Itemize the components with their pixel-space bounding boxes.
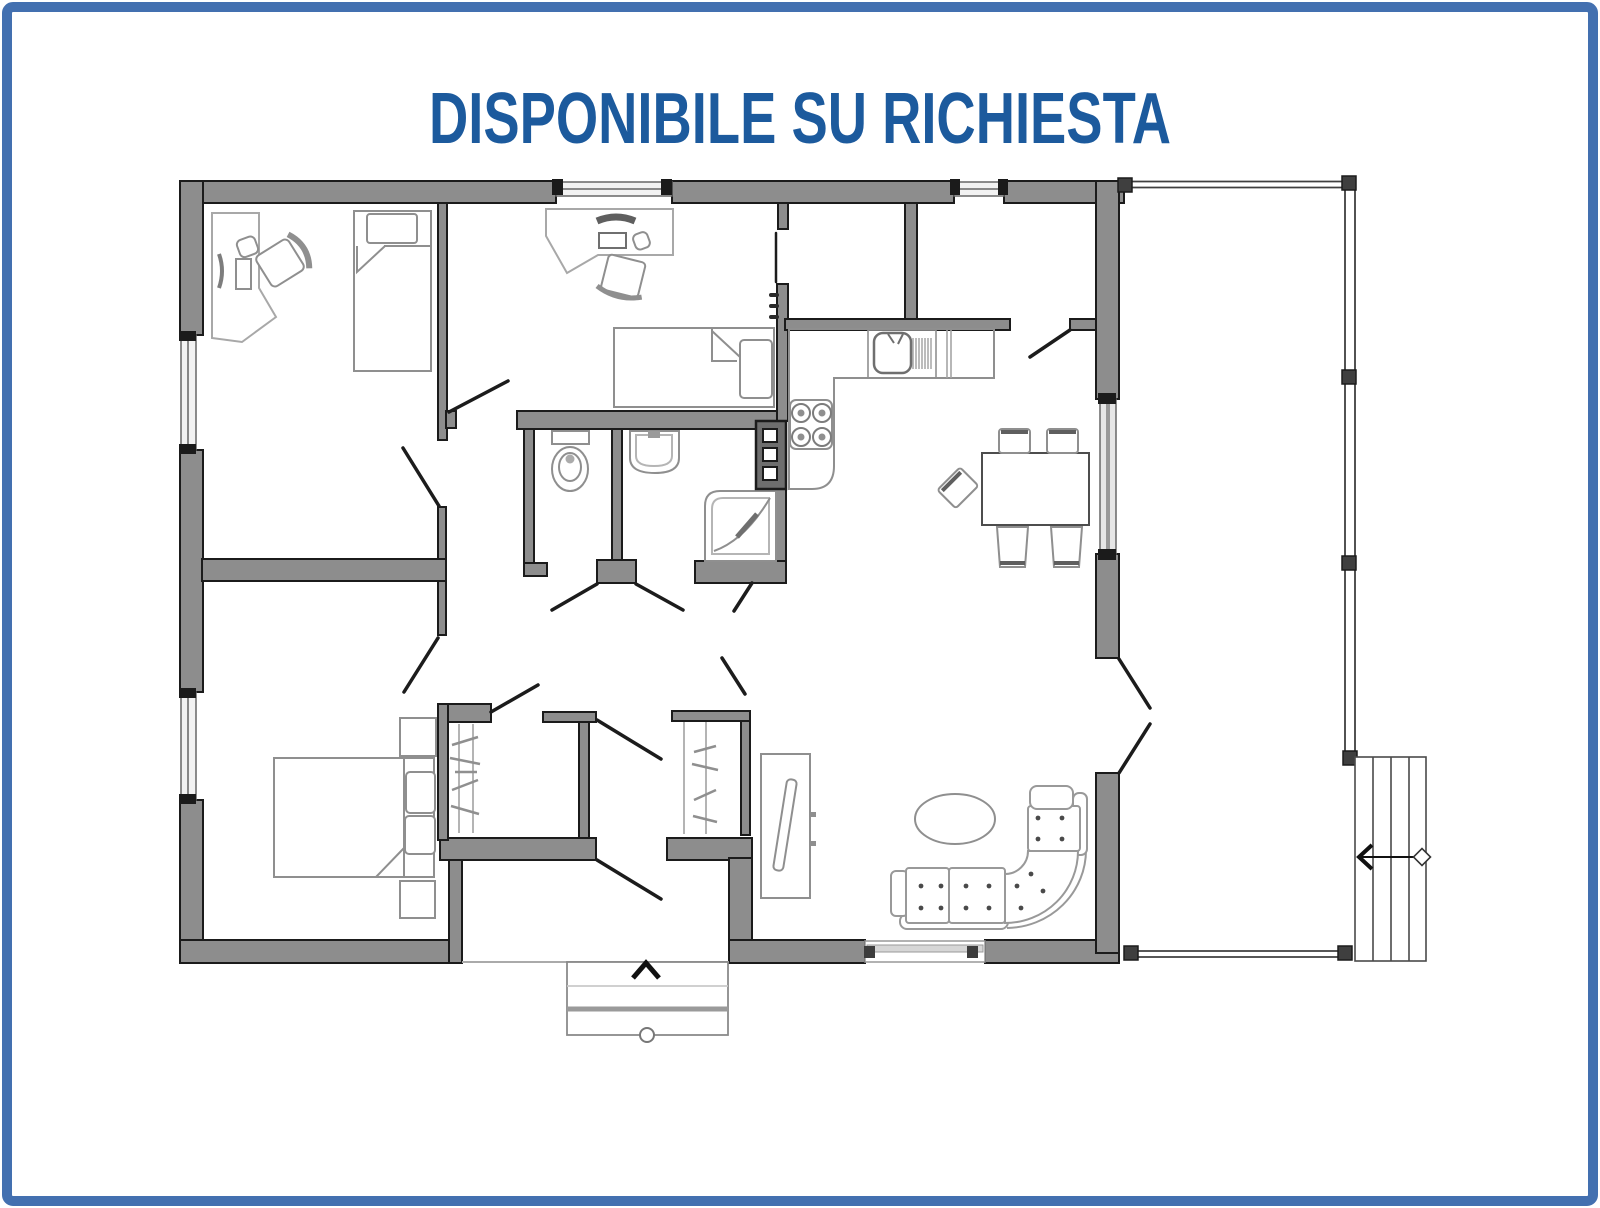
svg-text:DISPONIBILE SU RICHIESTA: DISPONIBILE SU RICHIESTA	[429, 79, 1171, 159]
